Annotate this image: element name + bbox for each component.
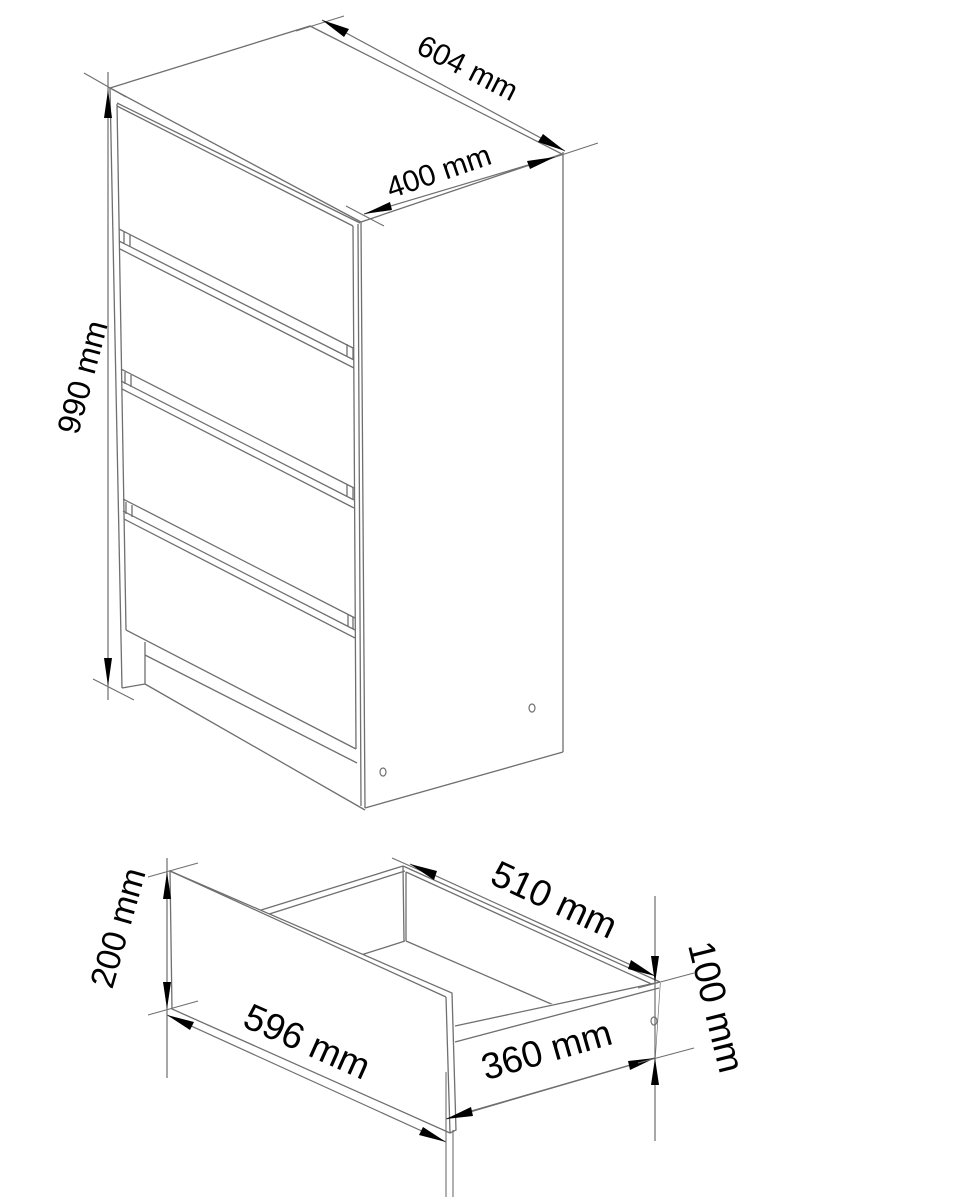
cabinet-height-label: 990 mm: [50, 317, 115, 438]
cabinet-screw-hole-back: [529, 704, 535, 712]
arrowhead-downleft: [364, 202, 392, 214]
cabinet-top-panel-strip: [117, 103, 360, 223]
arrowhead-up: [651, 1058, 659, 1085]
dim-cabinet-width: 604 mm: [296, 16, 598, 166]
arrowhead-upleft: [410, 864, 437, 880]
cabinet-top-face: [110, 26, 562, 222]
dimension-diagram: 990 mm 604 mm 400 mm: [0, 0, 963, 1200]
arrowhead-down: [104, 658, 112, 686]
drawer-inner-width-label: 510 mm: [485, 853, 623, 947]
cabinet-left-edge: [110, 88, 122, 688]
drawer-side-height-label: 100 mm: [680, 937, 752, 1077]
cabinet-drawer-left-boundary: [117, 104, 126, 630]
drawer-side-hole: [651, 1017, 657, 1025]
drawer-front-height-label: 200 mm: [83, 864, 153, 993]
cabinet-drawer-gap-notches: [124, 232, 353, 629]
arrowhead-upright: [527, 157, 555, 169]
cabinet-body: [110, 26, 563, 810]
cabinet-right-front-edges: [353, 222, 365, 808]
cabinet-figure: 990 mm 604 mm 400 mm: [50, 16, 598, 810]
drawer-front-panel: [170, 871, 456, 1133]
dim-cabinet-depth: 400 mm: [346, 139, 555, 226]
cabinet-width-label: 604 mm: [412, 29, 524, 108]
dim-drawer-inner-width: 510 mm: [392, 853, 655, 976]
arrowhead-down: [163, 982, 171, 1009]
cabinet-base-and-foot: [122, 642, 365, 810]
diagram-canvas: 990 mm 604 mm 400 mm: [0, 0, 963, 1200]
cabinet-drawer-front-edges: [117, 106, 356, 749]
dim-drawer-side-height: 100 mm: [638, 896, 752, 1141]
cabinet-screw-hole-front: [380, 768, 386, 776]
drawer-figure: 200 mm 596 mm 510 mm 360 mm: [83, 853, 752, 1197]
